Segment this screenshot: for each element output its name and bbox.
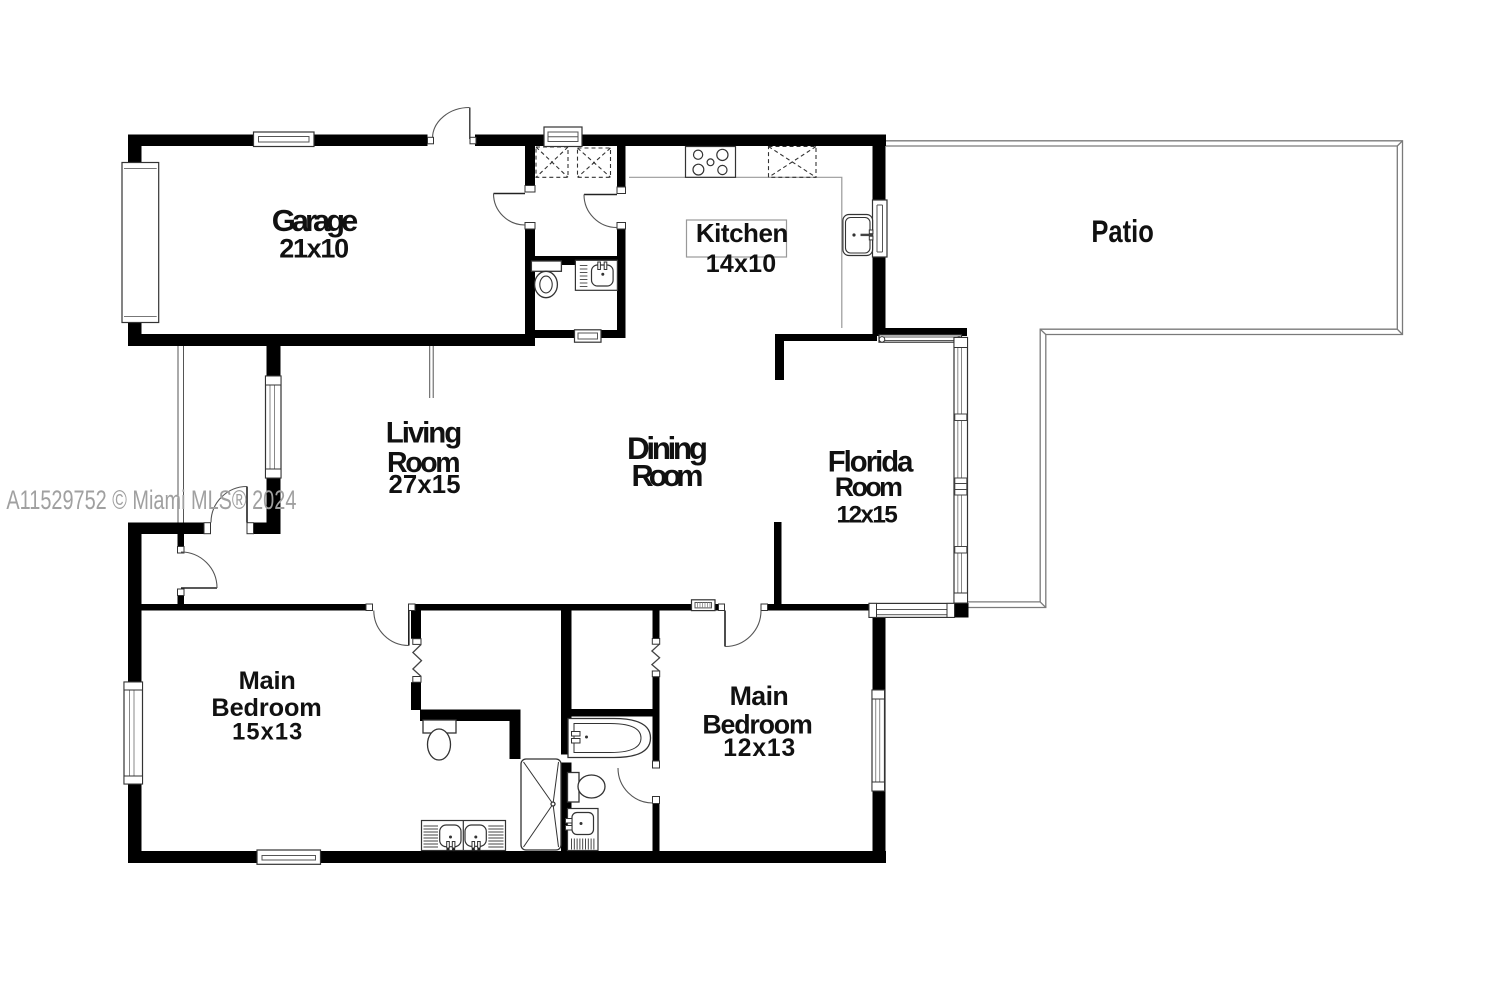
svg-text:Living: Living: [386, 416, 463, 449]
svg-text:12x15: 12x15: [837, 501, 898, 528]
svg-text:A11529752 © Miami MLS® 2024: A11529752 © Miami MLS® 2024: [6, 485, 296, 515]
svg-text:Room: Room: [632, 459, 704, 493]
svg-text:Bedroom: Bedroom: [211, 694, 321, 722]
svg-text:21x10: 21x10: [279, 233, 349, 263]
svg-text:12x13: 12x13: [723, 735, 795, 762]
svg-text:Kitchen: Kitchen: [696, 218, 788, 248]
svg-text:Main: Main: [239, 667, 296, 695]
svg-text:Main: Main: [730, 681, 789, 711]
svg-text:15x13: 15x13: [232, 720, 302, 746]
svg-text:27x15: 27x15: [389, 471, 461, 499]
svg-text:Patio: Patio: [1091, 213, 1153, 249]
svg-text:14x10: 14x10: [706, 250, 776, 278]
svg-text:Room: Room: [835, 472, 903, 502]
